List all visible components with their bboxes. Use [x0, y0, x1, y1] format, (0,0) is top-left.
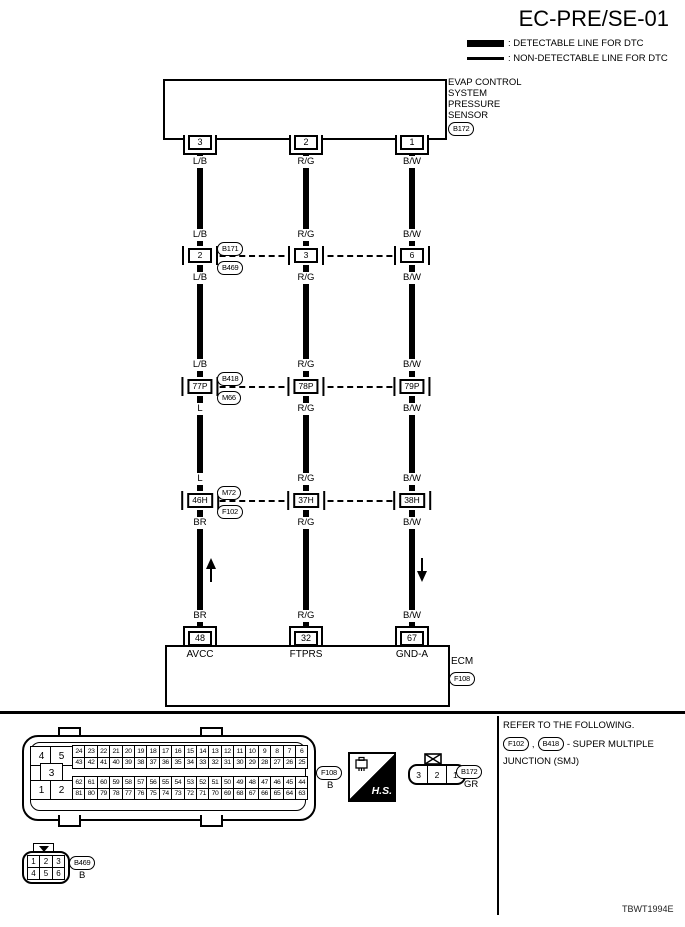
pin-cell: 66: [258, 788, 271, 801]
down-arrow-icon: [416, 558, 427, 582]
pin-cell: 31: [221, 757, 234, 770]
ecm-terminal-name: AVCC: [186, 649, 213, 660]
pin-cell: 36: [159, 757, 172, 770]
sensor-pin-number: 2: [294, 135, 318, 150]
junction-terminal: 38H: [393, 491, 431, 510]
pin-cell: 64: [283, 788, 296, 801]
terminal-number: 78P: [293, 379, 318, 394]
wire-color-label: R/G: [296, 610, 317, 622]
pin-grid-upper: 2423222120191817161514131211109876 43424…: [72, 745, 308, 769]
sensor-pin-symbol: 2: [289, 135, 323, 155]
wire-color-label: B/W: [401, 517, 423, 529]
sensor-name-line: EVAP CONTROL: [448, 77, 522, 88]
pin-row: 456: [27, 867, 66, 880]
connector-id-oval-f108-footer: F108: [316, 766, 342, 780]
connector-id-oval-m66: M66: [217, 391, 241, 405]
wire-color-label: B/W: [401, 156, 423, 168]
pin-cell: 38: [134, 757, 147, 770]
pin-cell: 37: [146, 757, 159, 770]
junction-terminal: 37H: [287, 491, 325, 510]
sensor-name: EVAP CONTROL SYSTEM PRESSURE SENSOR: [448, 77, 522, 121]
terminal-number: 46H: [187, 493, 213, 508]
pin-cell: 40: [109, 757, 122, 770]
connector-color-label: B: [327, 780, 333, 791]
connector-tab: [200, 815, 223, 827]
thick-line-icon: [467, 40, 504, 47]
pin-cell: 70: [208, 788, 221, 801]
hs-badge: H.S.: [348, 752, 396, 802]
pin-cell: 76: [134, 788, 147, 801]
wire-color-label: BR: [191, 517, 208, 529]
pin-cell: 35: [171, 757, 184, 770]
pin-cell: 63: [295, 788, 308, 801]
legend-detectable-label: : DETECTABLE LINE FOR DTC: [508, 38, 643, 49]
hs-badge-label: H.S.: [372, 785, 392, 797]
junction-terminal: 79P: [393, 377, 430, 396]
pin-cell: 5: [39, 867, 53, 880]
pin-cell: 28: [258, 757, 271, 770]
wire-color-label: R/G: [296, 272, 317, 284]
wire-color-label: B/W: [401, 610, 423, 622]
pin-cell: 41: [97, 757, 110, 770]
connector-id-oval-b469: B469: [217, 261, 243, 275]
pin-cell: 33: [196, 757, 209, 770]
wire-color-label: L: [195, 473, 204, 485]
pin-grid-lower: 62616059585756555453525150494847464544 8…: [72, 776, 308, 800]
pin-grid-row: 81807978777675747372717069686766656463: [72, 788, 308, 801]
wire-color-label: R/G: [296, 359, 317, 371]
sensor-name-line: SYSTEM: [448, 88, 522, 99]
thin-line-icon: [467, 57, 504, 60]
wire-color-label: L/B: [191, 272, 209, 284]
pin-cell: 69: [221, 788, 234, 801]
connector-view-icon: [353, 756, 370, 772]
wire-color-label: R/G: [296, 229, 317, 241]
sensor-pin-number: 3: [188, 135, 212, 150]
pin-cell: 80: [84, 788, 97, 801]
wire-color-label: R/G: [296, 517, 317, 529]
sensor-name-line: SENSOR: [448, 110, 522, 121]
wire-color-label: B/W: [401, 403, 423, 415]
pin-cell: 75: [146, 788, 159, 801]
connector-id-oval-b418-note: B418: [538, 737, 564, 751]
section-divider: [0, 711, 685, 714]
ecm-terminal-name: FTPRS: [290, 649, 323, 660]
connector-id-oval-f102-note: F102: [503, 737, 529, 751]
legend-detectable: : DETECTABLE LINE FOR DTC: [467, 38, 643, 49]
junction-terminal: 6: [394, 246, 430, 265]
terminal-number: 38H: [399, 493, 425, 508]
legend-non-detectable: : NON-DETECTABLE LINE FOR DTC: [467, 53, 668, 64]
pin-cell: 79: [97, 788, 110, 801]
terminal-number: 6: [400, 248, 424, 263]
vertical-divider: [497, 716, 499, 915]
terminal-number: 37H: [293, 493, 319, 508]
pin-cell: 25: [295, 757, 308, 770]
pin-cell: 77: [122, 788, 135, 801]
sensor-pin-symbol: 1: [395, 135, 429, 155]
wire-color-label: R/G: [296, 473, 317, 485]
ecm-pin-symbol: 67: [395, 626, 429, 646]
wire-color-label: L/B: [191, 229, 209, 241]
pin-cell: 78: [109, 788, 122, 801]
pin-cell: 81: [72, 788, 85, 801]
sensor-pin-symbol: 3: [183, 135, 217, 155]
pin-cell: 32: [208, 757, 221, 770]
wire-color-label: B/W: [401, 473, 423, 485]
legend-non-detectable-label: : NON-DETECTABLE LINE FOR DTC: [508, 53, 668, 64]
page-title: EC-PRE/SE-01: [519, 6, 669, 32]
pin-cell: 71: [196, 788, 209, 801]
ecm-pin-number: 48: [188, 631, 212, 646]
connector-id-oval-b172: B172: [448, 122, 474, 136]
wire-color-label: R/G: [296, 403, 317, 415]
pin-cell: 30: [233, 757, 246, 770]
pin-cell: 72: [184, 788, 197, 801]
junction-terminal: 46H: [181, 491, 219, 510]
connector-id-oval-m72: M72: [217, 486, 241, 500]
junction-connector-face: 123 456: [22, 851, 70, 884]
connector-tab: [58, 815, 81, 827]
reference-note-line3: JUNCTION (SMJ): [503, 756, 579, 767]
up-arrow-icon: [205, 558, 216, 582]
note-text: - SUPER MULTIPLE: [567, 739, 654, 750]
ecm-pin-number: 32: [294, 631, 318, 646]
ecm-terminal-name: GND-A: [396, 649, 428, 660]
wire-color-label: L/B: [191, 156, 209, 168]
pin-cell: 29: [245, 757, 258, 770]
connector-id-oval-f102: F102: [217, 505, 243, 519]
sensor-name-line: PRESSURE: [448, 99, 522, 110]
pin-cell: 2: [50, 780, 73, 800]
wiring-diagram-page: EC-PRE/SE-01 : DETECTABLE LINE FOR DTC :…: [0, 0, 685, 927]
pin-cell: 27: [270, 757, 283, 770]
wire-color-label: R/G: [296, 156, 317, 168]
ecm-pin-number: 67: [400, 631, 424, 646]
pin-cell: 6: [52, 867, 66, 880]
terminal-number: 2: [188, 248, 212, 263]
pin-cell: 43: [72, 757, 85, 770]
connector-color-label: GR: [464, 779, 478, 790]
pin-cell: 73: [171, 788, 184, 801]
pin-cell: 42: [84, 757, 97, 770]
wire-color-label: BR: [191, 610, 208, 622]
wire-color-label: B/W: [401, 272, 423, 284]
pin-cell: 39: [122, 757, 135, 770]
pin-grid-row: 43424140393837363534333231302928272625: [72, 757, 308, 770]
pin-cell: 2: [427, 766, 445, 783]
connector-id-oval-b469-footer: B469: [69, 856, 95, 870]
pin-cell: 68: [233, 788, 246, 801]
sensor-box: [163, 79, 447, 140]
figure-code: TBWT1994E: [622, 904, 674, 914]
connector-id-oval-b172-footer: B172: [456, 765, 482, 779]
ecm-name: ECM: [451, 656, 473, 667]
junction-terminal: 3: [288, 246, 324, 265]
terminal-number: 3: [294, 248, 318, 263]
junction-terminal: 78P: [287, 377, 324, 396]
connector-id-oval-f108: F108: [449, 672, 475, 686]
pin-cell: 3: [410, 766, 427, 783]
reference-note-line1: REFER TO THE FOLLOWING.: [503, 720, 634, 731]
wire-color-label: L/B: [191, 359, 209, 371]
reference-note-line2: F102 , B418 - SUPER MULTIPLE: [503, 737, 654, 751]
ecm-pin-symbol: 48: [183, 626, 217, 646]
note-separator: ,: [532, 739, 535, 750]
wire-color-label: L: [195, 403, 204, 415]
wire-color-label: B/W: [401, 359, 423, 371]
junction-terminal: 77P: [181, 377, 218, 396]
junction-terminal: 2: [182, 246, 218, 265]
ecm-pin-symbol: 32: [289, 626, 323, 646]
pin-cell: 74: [159, 788, 172, 801]
pin-cell: 26: [283, 757, 296, 770]
pin-cell: 4: [27, 867, 41, 880]
pin-cell: 34: [184, 757, 197, 770]
pin-cell: 67: [245, 788, 258, 801]
pin-cell: 65: [270, 788, 283, 801]
connector-id-oval-b418: B418: [217, 372, 243, 386]
wire-color-label: B/W: [401, 229, 423, 241]
terminal-number: 79P: [399, 379, 424, 394]
terminal-number: 77P: [187, 379, 212, 394]
connector-id-oval-b171: B171: [217, 242, 243, 256]
sensor-pin-number: 1: [400, 135, 424, 150]
connector-color-label: B: [79, 870, 85, 881]
